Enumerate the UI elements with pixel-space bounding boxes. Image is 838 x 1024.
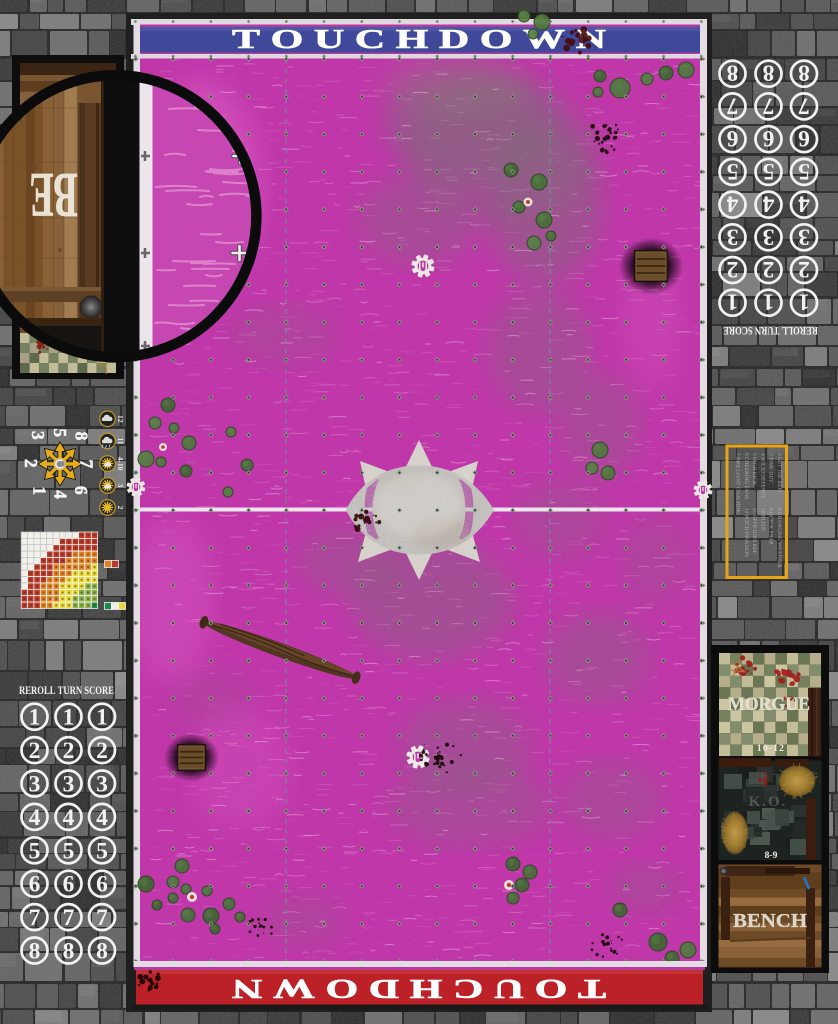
svg-text:5: 5 <box>50 428 70 437</box>
svg-text:3: 3 <box>116 484 125 488</box>
svg-text:2: 2 <box>21 459 41 468</box>
svg-text:REROLL TURN SCORE: REROLL TURN SCORE <box>19 685 114 697</box>
svg-text:10 BLITZ!: 10 BLITZ! <box>759 508 765 532</box>
svg-text:3: 3 <box>28 431 48 440</box>
svg-text:3: 3 <box>798 223 810 249</box>
svg-text:5: 5 <box>63 838 75 864</box>
svg-text:4: 4 <box>726 191 738 217</box>
svg-text:6 CHEERING FANS: 6 CHEERING FANS <box>743 453 749 499</box>
svg-text:BE: BE <box>30 160 78 231</box>
svg-text:5: 5 <box>29 838 41 864</box>
svg-text:3: 3 <box>29 772 41 798</box>
svg-text:8: 8 <box>727 60 739 86</box>
svg-text:7: 7 <box>798 92 810 118</box>
svg-text:12 PITCH INVASION: 12 PITCH INVASION <box>743 508 749 557</box>
svg-text:2 GET THE REF!: 2 GET THE REF! <box>776 453 782 492</box>
svg-text:5: 5 <box>798 158 810 184</box>
svg-text:10-12: 10-12 <box>757 744 785 754</box>
svg-text:1: 1 <box>29 705 41 731</box>
svg-text:7: 7 <box>63 905 75 931</box>
svg-text:12: 12 <box>116 415 125 423</box>
svg-text:11: 11 <box>116 437 125 444</box>
svg-text:5: 5 <box>727 158 739 184</box>
svg-text:2: 2 <box>798 256 810 282</box>
svg-text:4-10: 4-10 <box>116 457 125 471</box>
svg-text:9 QUICK SNAP: 9 QUICK SNAP <box>768 508 774 544</box>
svg-text:8: 8 <box>763 60 775 86</box>
svg-text:3: 3 <box>763 223 775 249</box>
svg-text:1: 1 <box>798 289 810 315</box>
svg-text:5: 5 <box>96 838 108 864</box>
svg-text:K.O.: K.O. <box>749 794 788 810</box>
svg-text:2: 2 <box>763 256 775 282</box>
svg-text:4: 4 <box>798 191 810 217</box>
svg-text:6: 6 <box>726 125 738 151</box>
svg-text:4: 4 <box>51 490 71 499</box>
svg-text:1: 1 <box>96 705 108 731</box>
svg-text:6: 6 <box>762 125 774 151</box>
svg-text:7: 7 <box>29 905 41 931</box>
svg-text:1: 1 <box>727 289 739 315</box>
svg-text:5 HIGH KICK: 5 HIGH KICK <box>751 453 757 485</box>
svg-text:4: 4 <box>63 805 75 831</box>
svg-text:4: 4 <box>29 805 41 831</box>
svg-text:8: 8 <box>96 939 108 965</box>
svg-text:1: 1 <box>763 289 775 315</box>
svg-text:8 CHANGING WEATHER: 8 CHANGING WEATHER <box>776 508 782 568</box>
svg-text:7: 7 <box>726 92 738 118</box>
svg-text:6: 6 <box>29 872 41 898</box>
svg-text:1: 1 <box>63 705 75 731</box>
svg-text:7 BRILLIANT COACHING: 7 BRILLIANT COACHING <box>735 453 741 515</box>
svg-text:BENCH: BENCH <box>733 910 807 932</box>
svg-text:2: 2 <box>96 738 108 764</box>
svg-text:3 TIME OUT: 3 TIME OUT <box>768 453 774 483</box>
svg-text:7: 7 <box>96 905 108 931</box>
svg-text:8-9: 8-9 <box>765 851 778 861</box>
svg-text:1: 1 <box>30 486 50 495</box>
svg-text:6: 6 <box>798 125 810 151</box>
svg-text:6: 6 <box>63 872 75 898</box>
svg-text:2: 2 <box>727 256 739 282</box>
svg-text:8: 8 <box>29 939 41 965</box>
svg-text:7: 7 <box>762 92 774 118</box>
svg-text:7: 7 <box>76 460 96 469</box>
svg-text:T O U C H D O W N: T O U C H D O W N <box>232 24 607 54</box>
svg-text:8: 8 <box>72 432 92 441</box>
svg-text:8: 8 <box>63 939 75 965</box>
svg-text:11 OFFICIOUS REF: 11 OFFICIOUS REF <box>751 508 757 554</box>
svg-text:2: 2 <box>63 738 75 764</box>
svg-text:4: 4 <box>96 805 108 831</box>
svg-text:3: 3 <box>63 772 75 798</box>
svg-text:8: 8 <box>798 60 810 86</box>
svg-text:4: 4 <box>762 191 774 217</box>
svg-text:6: 6 <box>71 486 91 495</box>
svg-text:2: 2 <box>116 506 125 510</box>
svg-text:3: 3 <box>727 223 739 249</box>
svg-text:4 SOLID DEFENCE: 4 SOLID DEFENCE <box>759 453 765 499</box>
svg-text:MORGUE: MORGUE <box>728 695 810 715</box>
svg-text:2: 2 <box>29 738 41 764</box>
svg-text:3: 3 <box>96 772 108 798</box>
svg-text:6: 6 <box>96 872 108 898</box>
svg-text:REROLL TURN SCORE: REROLL TURN SCORE <box>723 324 818 336</box>
svg-text:T O U C H D O W N: T O U C H D O W N <box>231 974 606 1004</box>
svg-text:5: 5 <box>763 158 775 184</box>
